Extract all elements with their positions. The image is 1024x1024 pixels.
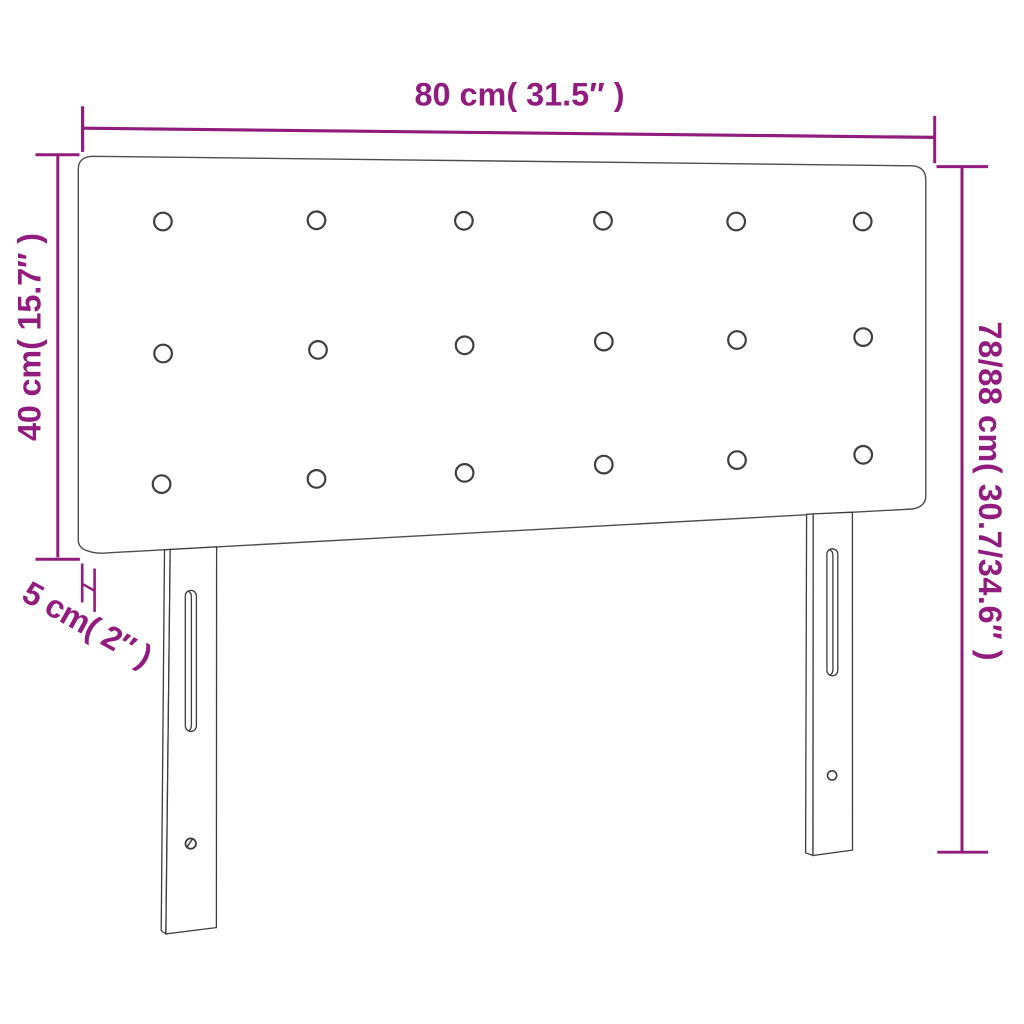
svg-text:40 cm( 15.7″ ): 40 cm( 15.7″ ) <box>12 233 48 441</box>
svg-text:78/88 cm( 30.7/34.6″ ): 78/88 cm( 30.7/34.6″ ) <box>972 322 1008 661</box>
svg-text:80 cm( 31.5″ ): 80 cm( 31.5″ ) <box>415 77 625 113</box>
